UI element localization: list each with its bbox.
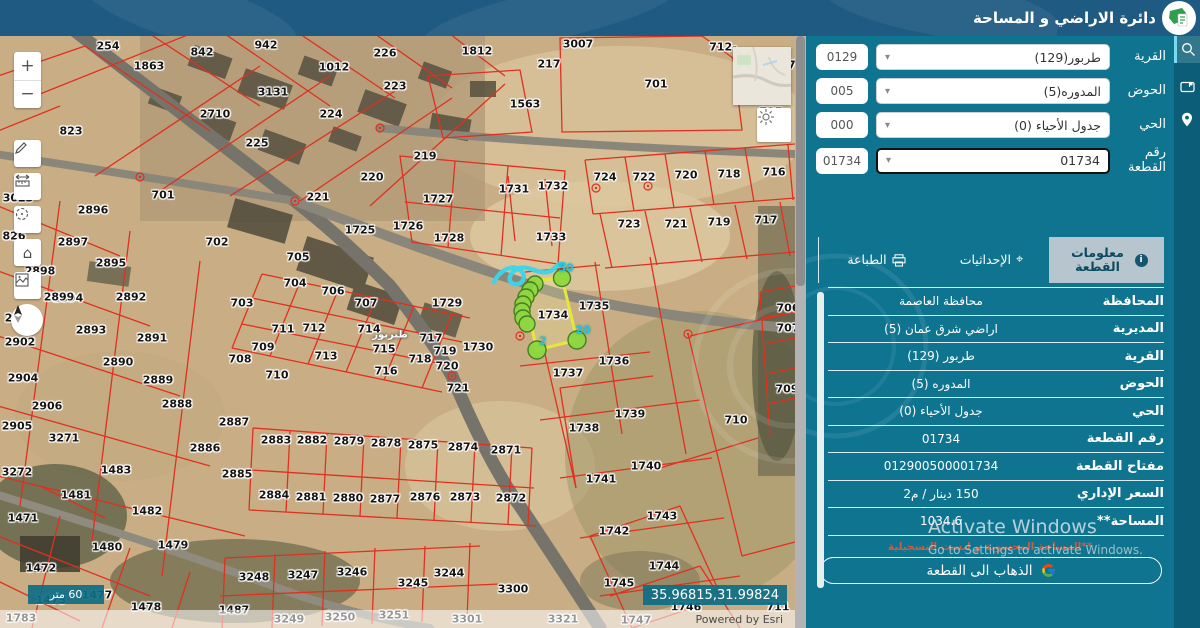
parcel-info-table: المحافظةمحافظة العاصمةالمديريةاراضي شرق … xyxy=(828,287,1164,536)
search-icon xyxy=(1181,42,1196,57)
basemap-icon xyxy=(14,272,30,288)
tab-coordinates[interactable]: ⌖ الإحداثيات xyxy=(934,237,1049,283)
rotate-button[interactable] xyxy=(14,206,41,233)
measure-button[interactable] xyxy=(14,173,41,200)
panel-tabs: i معلومات القطعة ⌖ الإحداثيات الطباعة xyxy=(818,237,1164,283)
info-row: المحافظةمحافظة العاصمة xyxy=(828,287,1164,316)
info-row-value: محافظة العاصمة xyxy=(828,294,1054,308)
north-arrow-icon xyxy=(11,304,25,324)
info-row-label: الحي xyxy=(1054,404,1164,419)
parcel-search-panel: القرية طربور(129) ▾ 0129 الحوض المدوره(5… xyxy=(806,36,1174,628)
printer-icon xyxy=(892,254,906,267)
info-row-value: 01734 xyxy=(828,432,1054,446)
search-tool-button[interactable] xyxy=(1174,36,1200,63)
info-row-value: 150 دينار / م2 xyxy=(828,487,1054,501)
field-district: الحي جدول الأحياء (0) ▾ 000 xyxy=(816,112,1166,138)
basemap-toggle-button[interactable] xyxy=(14,272,41,299)
info-row-label: المديرية xyxy=(1054,321,1164,336)
app-title: دائرة الاراضي و المساحة xyxy=(973,0,1156,36)
search-fields: القرية طربور(129) ▾ 0129 الحوض المدوره(5… xyxy=(816,44,1166,184)
area-footnote: **المساحة المحسوبة و ليست التسجيلية xyxy=(826,541,1154,553)
map-attribution: Powered by Esri xyxy=(0,610,795,628)
tab-print[interactable]: الطباعة xyxy=(818,237,934,283)
district-select-value: جدول الأحياء (0) xyxy=(1014,118,1101,133)
chevron-down-icon: ▾ xyxy=(885,120,890,131)
info-row: مفتاح القطعة012900500001734 xyxy=(828,453,1164,481)
location-tool-button[interactable] xyxy=(1174,106,1200,133)
info-row-value: 012900500001734 xyxy=(828,459,1054,473)
info-row-label: مفتاح القطعة xyxy=(1054,459,1164,474)
home-button[interactable]: ⌂ xyxy=(14,239,41,266)
dls-logo xyxy=(1162,1,1196,35)
satellite-layer xyxy=(0,36,795,628)
basin-select-value: المدوره(5) xyxy=(1044,84,1101,99)
info-row: الحيجدول الأحياء (0) xyxy=(828,398,1164,426)
overview-map[interactable] xyxy=(733,47,791,105)
tab-label: معلومات القطعة xyxy=(1066,246,1130,275)
info-row-label: رقم القطعة xyxy=(1054,431,1164,446)
info-row-label: المساحة** xyxy=(1054,514,1164,529)
coordinates-readout: 35.96815,31.99824 xyxy=(643,585,787,605)
info-row: الحوضالمدوره (5) xyxy=(828,371,1164,399)
field-label: رقم القطعة xyxy=(1110,146,1166,176)
compass-circle-icon xyxy=(14,206,30,222)
top-bar: دائرة الاراضي و المساحة xyxy=(0,0,1200,36)
pencil-icon xyxy=(14,140,29,155)
scale-bar: 60 متر xyxy=(28,585,104,604)
panel-scrollbar[interactable] xyxy=(817,292,824,588)
info-row-value: طربور (129) xyxy=(828,349,1054,363)
district-select[interactable]: جدول الأحياء (0) ▾ xyxy=(876,112,1110,138)
parcel-number-select[interactable]: 01734 ▾ xyxy=(876,148,1110,174)
field-village: القرية طربور(129) ▾ 0129 xyxy=(816,44,1166,70)
parcel-number-code: 01734 xyxy=(816,148,868,174)
tab-label: الطباعة xyxy=(847,253,886,267)
chevron-down-icon: ▾ xyxy=(885,52,890,63)
map-canvas[interactable]: 25484294218123007712-8722618631012217223… xyxy=(0,36,795,628)
topbar-decoration xyxy=(418,0,682,36)
info-row-label: السعر الإداري xyxy=(1054,486,1164,501)
info-row-value: المدوره (5) xyxy=(828,377,1054,391)
zoom-in-button[interactable]: + xyxy=(14,52,41,81)
field-label: الحوض xyxy=(1110,84,1166,99)
google-icon xyxy=(1041,563,1056,578)
chevron-down-icon: ▾ xyxy=(885,86,890,97)
north-arrow-button[interactable] xyxy=(11,304,43,336)
map-layers-icon xyxy=(1180,80,1195,93)
home-icon: ⌂ xyxy=(23,244,33,262)
info-row: المديريةاراضي شرق عمان (5) xyxy=(828,316,1164,344)
info-row-label: المحافظة xyxy=(1054,294,1164,309)
basin-select[interactable]: المدوره(5) ▾ xyxy=(876,78,1110,104)
brightness-button[interactable] xyxy=(757,108,791,142)
parcel-number-value: 01734 xyxy=(1060,153,1100,168)
field-basin: الحوض المدوره(5) ▾ 005 xyxy=(816,78,1166,104)
info-icon: i xyxy=(1135,254,1148,267)
goto-parcel-label: الذهاب الى القطعة xyxy=(926,563,1032,579)
info-row: القريةطربور (129) xyxy=(828,343,1164,371)
info-row-value: اراضي شرق عمان (5) xyxy=(828,322,1054,336)
goto-parcel-button[interactable]: الذهاب الى القطعة xyxy=(820,557,1162,584)
location-pin-icon xyxy=(1181,112,1193,127)
ruler-icon xyxy=(14,173,31,188)
info-row: السعر الإداري150 دينار / م2 xyxy=(828,481,1164,509)
field-label: الحي xyxy=(1110,118,1166,133)
field-label: القرية xyxy=(1110,50,1166,65)
info-row: رقم القطعة01734 xyxy=(828,426,1164,454)
field-parcel-number: رقم القطعة 01734 ▾ 01734 xyxy=(816,146,1166,176)
basin-code: 005 xyxy=(816,78,868,104)
tab-label: الإحداثيات xyxy=(960,253,1011,267)
draw-button[interactable] xyxy=(14,140,41,167)
scrollbar-thumb[interactable] xyxy=(796,36,805,286)
side-toolbar xyxy=(1174,36,1200,628)
info-row-value: جدول الأحياء (0) xyxy=(828,404,1054,418)
zoom-out-button[interactable]: − xyxy=(14,81,41,109)
chevron-down-icon: ▾ xyxy=(886,155,891,166)
tab-parcel-info[interactable]: i معلومات القطعة xyxy=(1049,237,1164,283)
info-row: المساحة**1034.6 xyxy=(828,508,1164,536)
village-select-value: طربور(129) xyxy=(1035,50,1101,65)
village-code: 0129 xyxy=(816,44,868,70)
map-panel-scrollbar[interactable] xyxy=(795,36,806,628)
zoom-controls: + − xyxy=(14,52,41,108)
topbar-decoration xyxy=(76,0,304,36)
village-select[interactable]: طربور(129) ▾ xyxy=(876,44,1110,70)
info-row-value: 1034.6 xyxy=(828,514,1054,528)
coordinates-icon: ⌖ xyxy=(1016,253,1023,268)
info-row-label: القرية xyxy=(1054,349,1164,364)
layers-tool-button[interactable] xyxy=(1174,73,1200,100)
district-code: 000 xyxy=(816,112,868,138)
info-row-label: الحوض xyxy=(1054,376,1164,391)
land-survey-app: دائرة الاراضي و المساحة xyxy=(0,0,1200,628)
sun-icon xyxy=(757,108,775,126)
